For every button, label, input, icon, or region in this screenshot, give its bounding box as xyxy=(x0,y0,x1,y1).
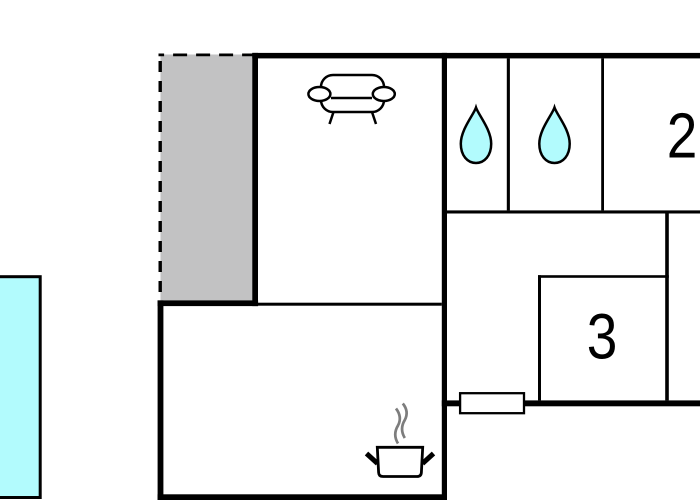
svg-text:2: 2 xyxy=(667,99,698,171)
svg-text:3: 3 xyxy=(587,301,618,373)
